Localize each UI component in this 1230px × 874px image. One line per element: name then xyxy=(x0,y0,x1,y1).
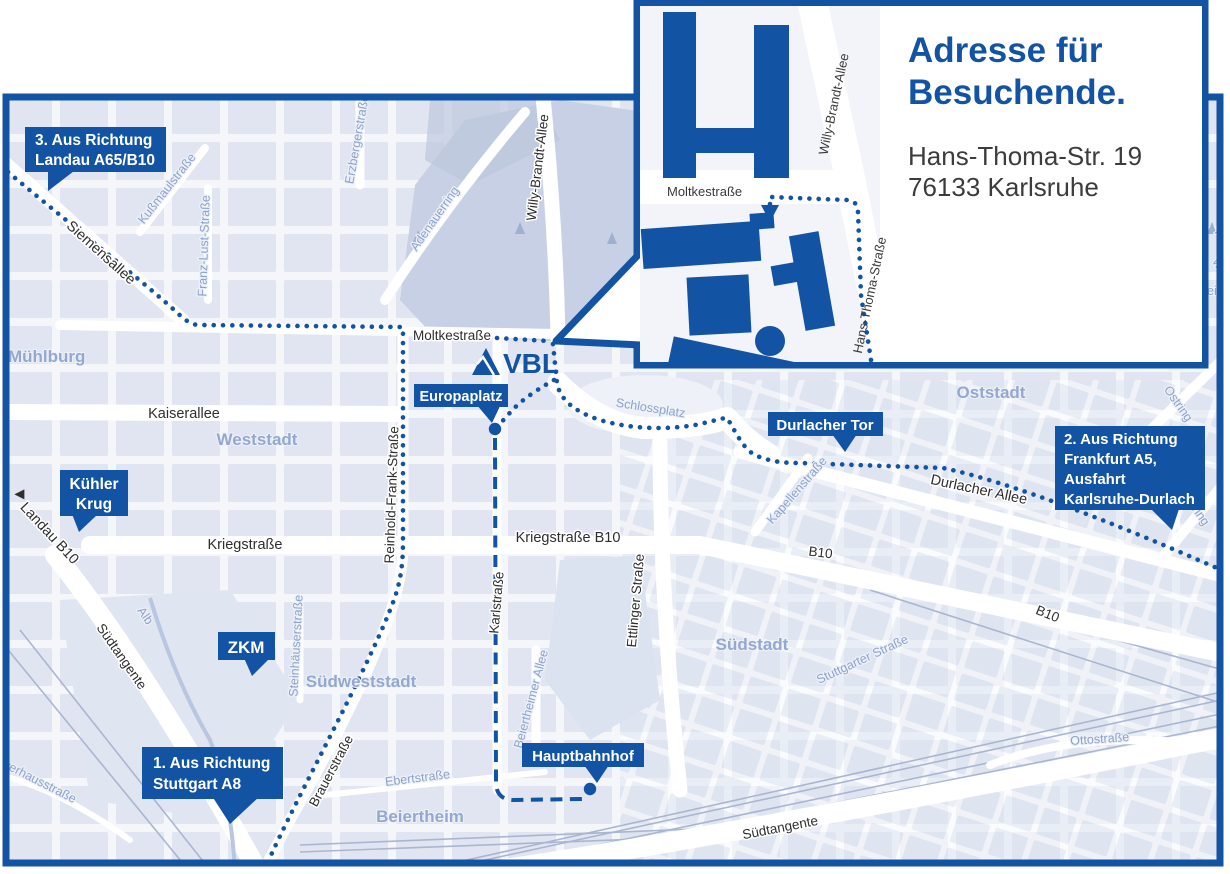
street-label: B10 xyxy=(808,544,834,562)
inset-title-line2: Besuchende. xyxy=(908,73,1126,112)
district-label: Oststadt xyxy=(957,383,1026,402)
callout-line: Hauptbahnhof xyxy=(532,748,635,765)
district-label: Mühlburg xyxy=(8,347,85,366)
district-label: Südstadt xyxy=(716,635,789,654)
hauptbahnhof-stop-dot xyxy=(584,783,596,795)
map-canvas: Siemensallee Moltkestraße Willy-Brandt-A… xyxy=(0,0,1230,874)
inset-title-line1: Adresse für xyxy=(908,31,1103,70)
inset-map: Moltkestraße Willy-Brandt-Allee Hans-Tho… xyxy=(640,0,1202,408)
callout-line: Ausfahrt xyxy=(1064,471,1126,488)
europaplatz-stop-dot xyxy=(489,423,501,435)
callout-line: ZKM xyxy=(228,638,265,657)
inset-address-line2: 76133 Karlsruhe xyxy=(908,172,1099,202)
street-label: Moltkestraße xyxy=(413,328,491,343)
callout-line: Kühler xyxy=(69,476,118,493)
vbl-logo-text: VBL xyxy=(503,348,559,379)
callout-line: Frankfurt A5, xyxy=(1064,451,1157,468)
district-label: Südweststadt xyxy=(306,672,417,691)
callout-line: Landau A65/B10 xyxy=(35,152,155,169)
street-label: Kriegstraße B10 xyxy=(516,530,621,546)
district-label: Weststadt xyxy=(217,430,298,449)
callout-line: Stuttgart A8 xyxy=(153,776,241,793)
callout-line: 1. Aus Richtung xyxy=(153,755,270,772)
callout-line: Durlacher Tor xyxy=(776,417,873,434)
district-label: Beiertheim xyxy=(376,807,464,826)
vbl-directions-map: Siemensallee Moltkestraße Willy-Brandt-A… xyxy=(0,0,1230,874)
callout-line: Europaplatz xyxy=(420,389,503,405)
street-label: Kriegstraße xyxy=(208,537,283,553)
callout-line: Krug xyxy=(76,496,112,513)
callout-line: 3. Aus Richtung xyxy=(35,132,152,149)
inset-address-line1: Hans-Thoma-Str. 19 xyxy=(908,141,1142,171)
inset-street-label: Moltkestraße xyxy=(667,184,742,199)
inset-panel: Moltkestraße Willy-Brandt-Allee Hans-Tho… xyxy=(556,0,1205,408)
callout-line: Karlsruhe-Durlach xyxy=(1064,491,1195,508)
vbl-logo: VBL xyxy=(472,348,559,379)
street-label: Kaiserallee xyxy=(148,406,220,422)
callout-line: 2. Aus Richtung xyxy=(1064,431,1178,448)
